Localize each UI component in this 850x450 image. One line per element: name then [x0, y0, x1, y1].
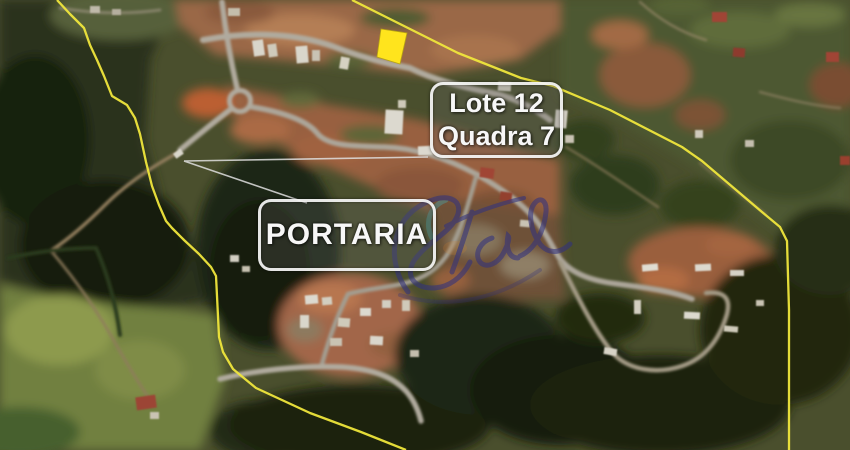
gate-label-text: PORTARIA: [266, 218, 428, 252]
lot-label-line1: Lote 12: [449, 87, 544, 120]
gate-label: PORTARIA: [258, 199, 436, 271]
aerial-map: Lote 12 Quadra 7 PORTARIA: [0, 0, 850, 450]
lot-label: Lote 12 Quadra 7: [430, 82, 563, 158]
lot-label-line2: Quadra 7: [438, 120, 555, 153]
